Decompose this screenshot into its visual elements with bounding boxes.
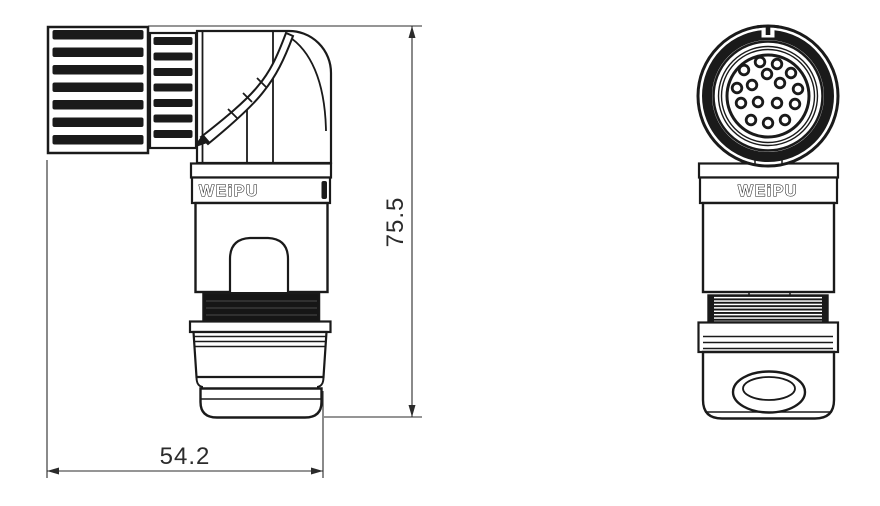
brand-label-front: WEiPU xyxy=(738,183,798,200)
pin xyxy=(746,115,756,125)
side-view: WEiPU xyxy=(48,27,331,418)
pin xyxy=(763,118,773,128)
gland-notch-right xyxy=(318,377,324,389)
pin xyxy=(790,99,800,109)
thread-section-front xyxy=(708,295,828,322)
thread-section-side xyxy=(203,294,320,322)
connector-drawing: WEiPU WEiPU xyxy=(0,0,880,506)
pin xyxy=(736,98,746,108)
body-front xyxy=(703,203,834,292)
pin xyxy=(762,69,772,79)
pin xyxy=(775,78,785,88)
pin xyxy=(780,115,790,125)
technical-drawing-canvas: WEiPU WEiPU xyxy=(0,0,880,506)
gland-nut-side xyxy=(194,332,327,377)
pin xyxy=(753,97,763,107)
cable-cap-side xyxy=(201,389,322,418)
width-dimension-label: 54.2 xyxy=(160,443,211,470)
pin xyxy=(772,98,782,108)
key-mark xyxy=(766,27,771,36)
pin xyxy=(739,65,749,75)
pin xyxy=(772,59,782,69)
gland-flange-side xyxy=(190,322,331,333)
pin xyxy=(755,57,765,67)
brand-label-side: WEiPU xyxy=(199,183,259,200)
gland-notch-left xyxy=(197,377,203,389)
collar-flange xyxy=(191,164,331,178)
band-mark xyxy=(322,181,328,199)
height-dimension-label: 75.5 xyxy=(382,197,409,248)
pin xyxy=(793,84,803,94)
pin xyxy=(732,83,742,93)
pin xyxy=(786,68,796,78)
connector-face xyxy=(698,25,838,167)
front-view: WEiPU xyxy=(698,25,838,419)
body-dome xyxy=(230,238,288,292)
gland-flange-front xyxy=(699,323,839,353)
pin xyxy=(747,80,757,90)
elbow-housing xyxy=(197,31,331,163)
